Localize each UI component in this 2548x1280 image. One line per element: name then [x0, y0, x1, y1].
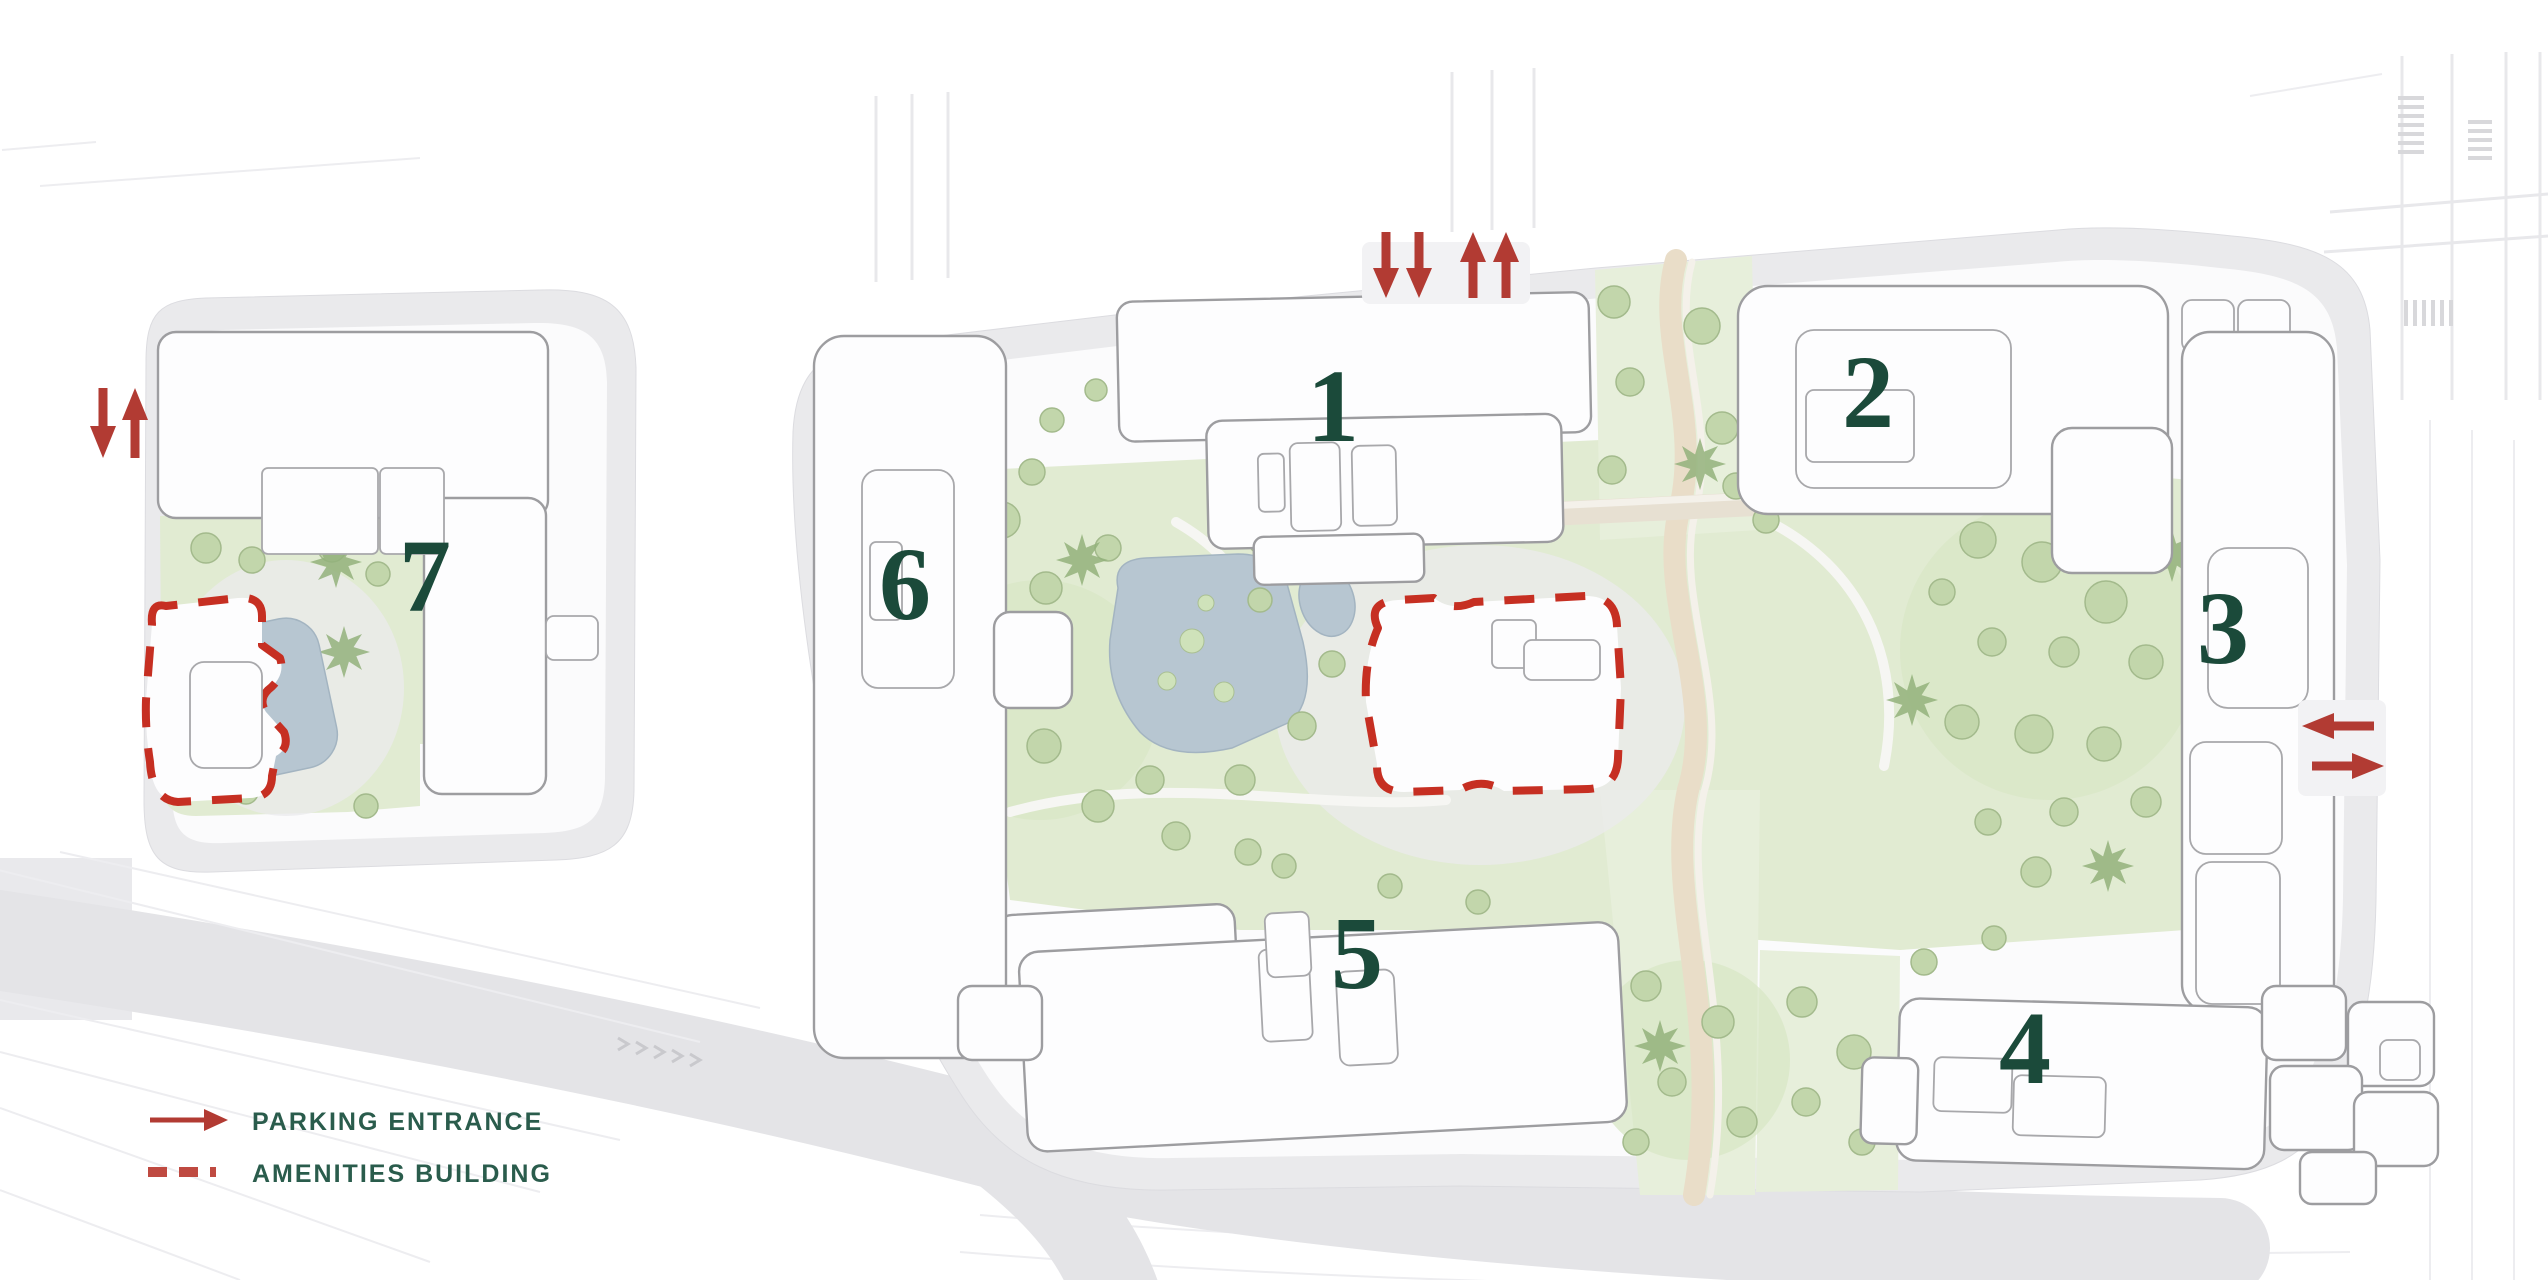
- amenities-building-central: [1366, 596, 1621, 792]
- arrow-down-icon: [90, 388, 116, 458]
- building-label-5: 5: [1331, 896, 1383, 1011]
- legend: PARKING ENTRANCE AMENITIES BUILDING: [148, 1108, 552, 1188]
- building-label-4: 4: [1999, 991, 2051, 1106]
- crosswalk-hatch-a: [2398, 98, 2424, 152]
- west-parcel: [144, 290, 636, 872]
- building-label-7: 7: [399, 519, 451, 634]
- crosswalk-hatch-b: [2468, 122, 2492, 158]
- crosswalk-hatch-c: [2406, 300, 2451, 326]
- parking-entrance-west: [90, 388, 148, 458]
- main-parcel: [793, 228, 2438, 1204]
- legend-label-parking: PARKING ENTRANCE: [252, 1108, 543, 1136]
- legend-label-amenities: AMENITIES BUILDING: [252, 1160, 552, 1188]
- site-plan: 1 2 3 4 5 6 7 PARKING ENTRANCE AMENITIES…: [0, 0, 2548, 1280]
- red-arrow-icon: [150, 1109, 228, 1131]
- east-entrance-drive: [2298, 700, 2386, 796]
- legend-amenities-building: AMENITIES BUILDING: [148, 1160, 552, 1188]
- building-label-2: 2: [1842, 335, 1894, 450]
- building-label-3: 3: [2197, 571, 2249, 686]
- building-label-6: 6: [879, 527, 931, 642]
- building-label-1: 1: [1307, 349, 1359, 464]
- arrow-up-icon: [122, 388, 148, 458]
- legend-parking-entrance: PARKING ENTRANCE: [150, 1108, 543, 1136]
- site-plan-map: 1 2 3 4 5 6 7 PARKING ENTRANCE AMENITIES…: [0, 0, 2548, 1280]
